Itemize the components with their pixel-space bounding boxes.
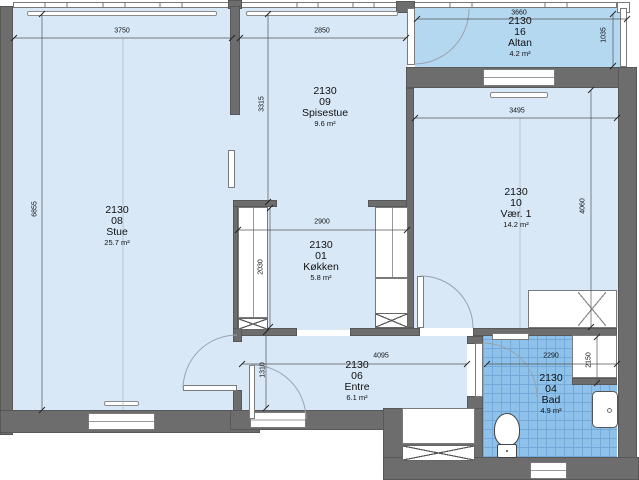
- kitchen-cabinet-right-icon: [375, 313, 408, 328]
- room-area: 9.6 m²: [302, 119, 348, 128]
- radiator-stue-bottom: [104, 401, 139, 406]
- room-name: Altan: [508, 38, 532, 49]
- wardrobe-entre-icon: [402, 445, 475, 461]
- dimension-stue-height: 6855: [32, 201, 39, 217]
- floor-plan: 2130 08 Stue 25.7 m² 2130 09 Spisestue 9…: [0, 0, 639, 480]
- window-vaer1-altan: [483, 69, 555, 86]
- room-name: Stue: [104, 227, 129, 238]
- wardrobe-door-marks-icon: [578, 292, 606, 326]
- wall-bad-niche-stub: [572, 378, 617, 385]
- dimension-vaer1-height: 4060: [580, 198, 587, 214]
- wall-kokken-top-stub-left: [233, 200, 277, 207]
- room-area: 6.1 m²: [344, 393, 369, 402]
- cabinet-entre: [402, 408, 475, 444]
- room-area: 4.2 m²: [508, 49, 532, 58]
- wall-exterior-right: [618, 67, 637, 462]
- room-label-stue: 2130 08 Stue 25.7 m²: [104, 205, 129, 247]
- room-name: Køkken: [303, 262, 339, 273]
- dimension-entre-depth: 1310: [260, 362, 267, 378]
- room-name: Bad: [539, 395, 562, 406]
- dimension-spisestue-height: 3315: [259, 96, 266, 112]
- window-entre-bottom: [250, 412, 306, 428]
- wall-stue-spisestue-divider: [230, 6, 240, 115]
- room-name: Spisestue: [302, 108, 348, 119]
- window-altan-right-glass: [620, 8, 627, 67]
- room-label-vaer1: 2130 10 Vær. 1 14.2 m²: [501, 187, 532, 229]
- window-stue-bottom: [88, 413, 155, 430]
- wall-kokken-top-stub-right: [368, 200, 408, 207]
- kitchen-appliance-right: [375, 278, 408, 314]
- room-label-entre: 2130 06 Entre 6.1 m²: [344, 360, 369, 402]
- radiator-spisestue-top: [246, 11, 398, 16]
- dimension-altan-depth: 1035: [601, 27, 608, 43]
- room-name: Vær. 1: [501, 209, 532, 220]
- radiator-stue-top: [27, 11, 217, 16]
- kitchen-cabinet-left-icon: [238, 318, 268, 330]
- dimension-kokken-width: 2900: [314, 219, 330, 226]
- kitchen-counter-right: [375, 207, 408, 278]
- toilet-icon: [493, 413, 521, 459]
- dimension-vaer1-width: 3495: [509, 108, 525, 115]
- door-leaf-bad: [475, 343, 483, 397]
- window-band-top: [13, 2, 617, 8]
- room-label-kokken: 2130 01 Køkken 5.8 m²: [303, 240, 339, 282]
- wall-exterior-left: [0, 6, 13, 435]
- door-leaf-stue: [183, 385, 237, 391]
- door-leaf-vaer1: [417, 276, 424, 328]
- room-label-spisestue: 2130 09 Spisestue 9.6 m²: [302, 86, 348, 128]
- bad-duct-niche: [572, 335, 617, 378]
- room-area: 5.8 m²: [303, 273, 339, 282]
- dimension-stue-width: 3750: [114, 28, 130, 35]
- door-leaf-altan: [407, 8, 415, 65]
- room-area: 4.9 m²: [539, 406, 562, 415]
- dimension-entre-width: 4095: [373, 353, 389, 360]
- wall-entre-north-2: [350, 328, 420, 336]
- dimension-bad-height: 2150: [586, 352, 593, 368]
- wall-stue-entre-stub-top: [233, 328, 242, 342]
- wall-stue-entre-stub-bottom: [233, 390, 242, 412]
- dimension-bad-width: 2290: [543, 353, 559, 360]
- sink-icon: [592, 391, 618, 428]
- room-area: 25.7 m²: [104, 238, 129, 247]
- entry-door-step: [530, 462, 567, 479]
- dimension-spisestue-width: 2850: [314, 28, 330, 35]
- door-leaf-entre: [249, 365, 255, 419]
- partition-stue-spisestue: [228, 150, 235, 188]
- room-area: 14.2 m²: [501, 220, 532, 229]
- room-name: Entre: [344, 382, 369, 393]
- radiator-vaer1: [490, 92, 548, 98]
- dimension-altan-width: 3660: [511, 10, 527, 17]
- wardrobe-vaer1: [528, 290, 617, 328]
- bad-shelf: [492, 333, 529, 340]
- room-label-bad: 2130 04 Bad 4.9 m²: [539, 373, 562, 415]
- dimension-kokken-height: 2030: [258, 259, 265, 275]
- room-label-altan: 2130 16 Altan 4.2 m²: [508, 16, 532, 58]
